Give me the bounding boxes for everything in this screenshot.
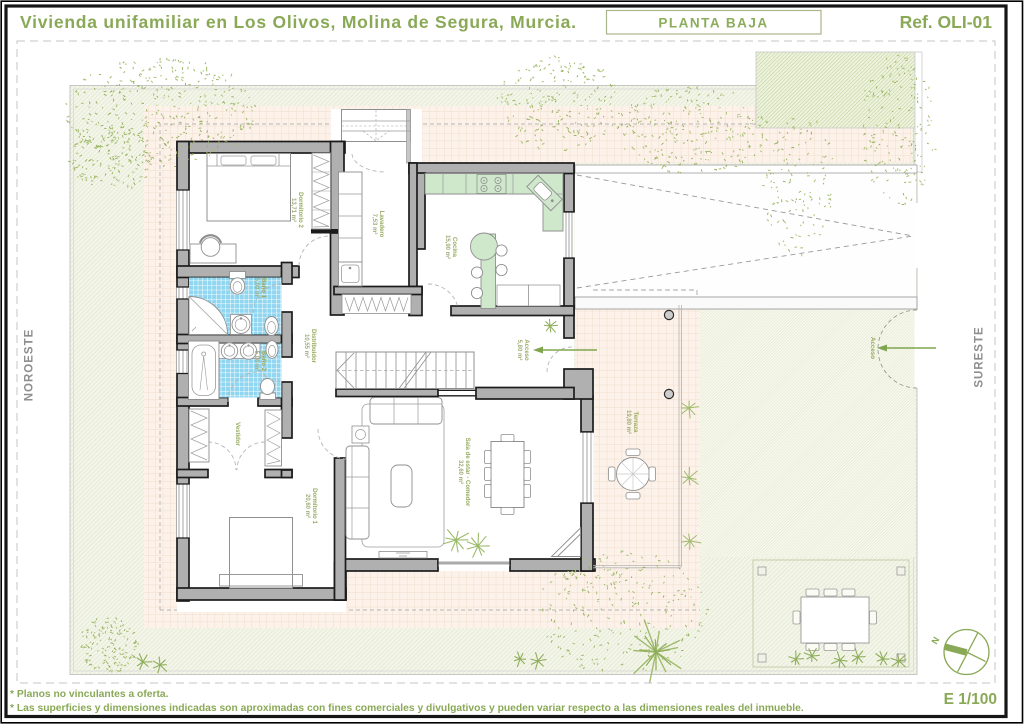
svg-text:Vestidor: Vestidor [234,422,240,446]
svg-text:5,80 m²: 5,80 m² [516,340,523,361]
svg-text:E 1/100: E 1/100 [944,691,997,708]
svg-text:5,06 m²: 5,06 m² [253,351,260,372]
svg-text:Terraza: Terraza [632,412,638,434]
svg-text:Sala de estar - Comedor: Sala de estar - Comedor [464,438,470,507]
svg-text:20,60 m²: 20,60 m² [304,494,311,518]
svg-text:Acceso: Acceso [523,339,529,361]
svg-text:Baño 2: Baño 2 [260,351,266,372]
svg-text:PLANTA BAJA: PLANTA BAJA [658,16,768,31]
svg-text:* Planos no vinculantes a ofer: * Planos no vinculantes a oferta. [10,689,169,700]
svg-text:Dormitorio 2: Dormitorio 2 [297,192,303,228]
svg-text:Lavadero: Lavadero [378,211,384,238]
svg-text:5,09 m²: 5,09 m² [253,278,260,299]
svg-text:Ref. OLI-01: Ref. OLI-01 [900,12,993,32]
svg-text:* Las superficies y dimensione: * Las superficies y dimensiones indicada… [10,703,804,714]
svg-text:NOROESTE: NOROESTE [24,329,36,402]
svg-text:Vivienda unifamiliar en Los Ol: Vivienda unifamiliar en Los Olivos, Moli… [20,12,576,32]
svg-text:19,80 m²: 19,80 m² [625,410,632,434]
svg-text:13,71 m²: 13,71 m² [290,198,297,222]
svg-text:SURESTE: SURESTE [974,326,986,387]
svg-text:Dormitorio 1: Dormitorio 1 [311,488,317,524]
svg-text:15,90 m²: 15,90 m² [444,235,451,259]
svg-text:Baño 1: Baño 1 [260,278,266,299]
svg-text:32,60 m²: 32,60 m² [457,460,464,484]
svg-text:10,55 m²: 10,55 m² [303,334,310,358]
svg-text:Distribuidor: Distribuidor [310,329,316,364]
svg-text:Acceso: Acceso [869,337,876,359]
svg-text:Cocina: Cocina [451,237,457,258]
svg-text:7,53 m²: 7,53 m² [371,214,378,235]
